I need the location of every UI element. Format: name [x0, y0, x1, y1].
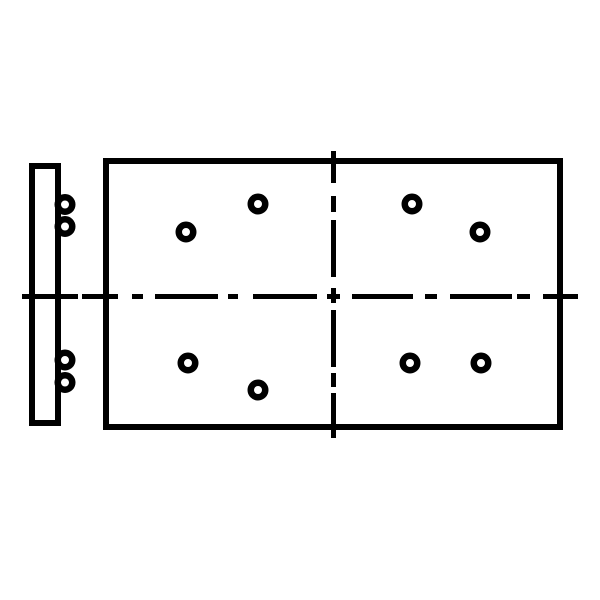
package-technical-drawing — [0, 0, 600, 600]
mounting-hole — [251, 383, 266, 398]
drawing-canvas — [0, 0, 600, 600]
mounting-hole — [474, 356, 489, 371]
mounting-hole — [251, 197, 266, 212]
mounting-hole — [473, 225, 488, 240]
mounting-hole — [403, 356, 418, 371]
mounting-hole — [405, 197, 420, 212]
mounting-hole — [179, 225, 194, 240]
mounting-hole — [181, 356, 196, 371]
